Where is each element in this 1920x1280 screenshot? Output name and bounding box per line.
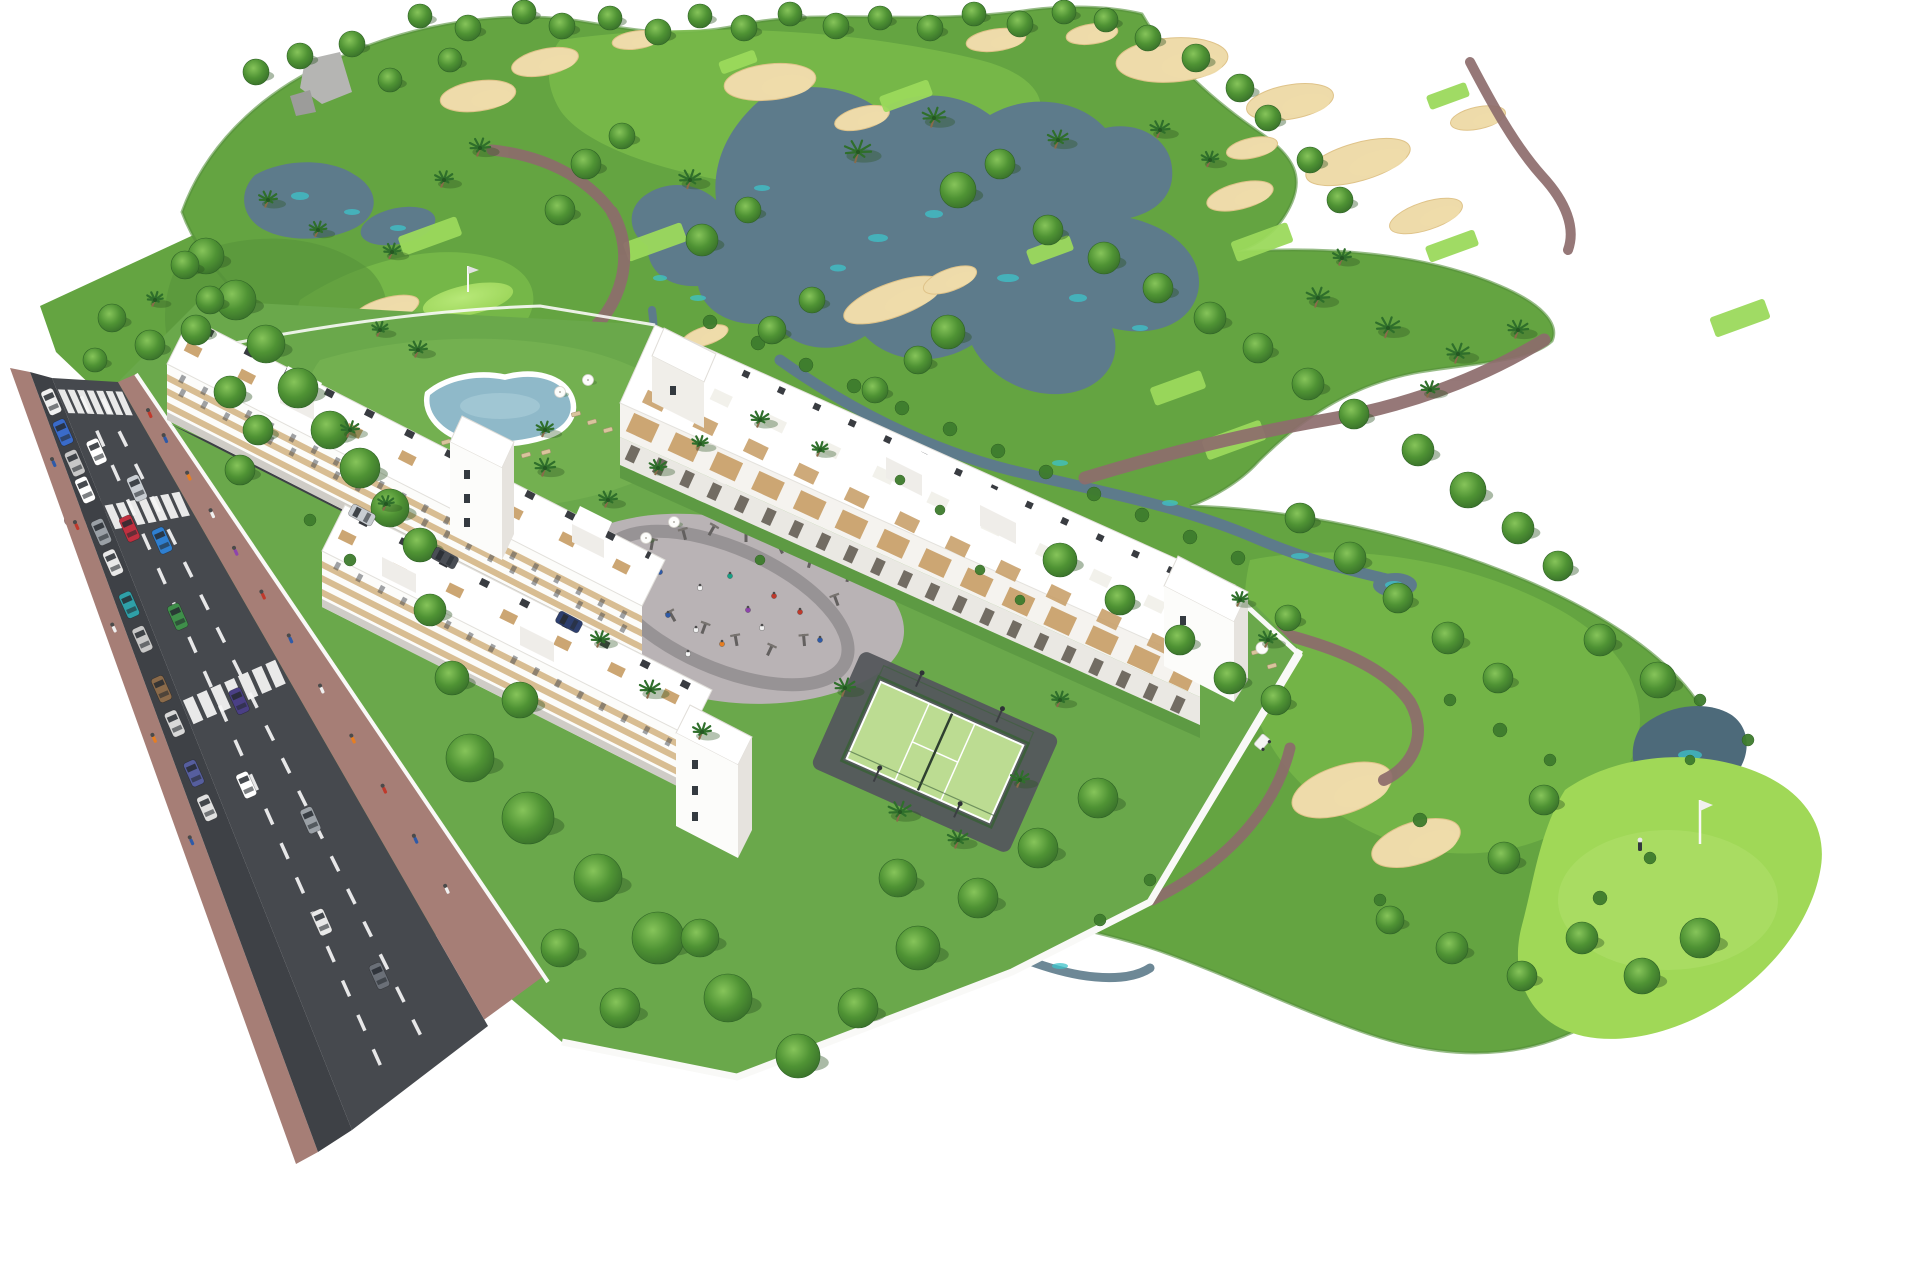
- palm-crown: [1516, 328, 1520, 332]
- parasol-pole: [673, 521, 675, 523]
- palm-crown: [1316, 296, 1320, 300]
- tree-canopy: [1226, 74, 1254, 102]
- tree-canopy: [1432, 622, 1464, 654]
- tree-canopy: [1436, 932, 1468, 964]
- tree-canopy: [645, 19, 671, 45]
- tree-canopy: [917, 15, 943, 41]
- palm-crown: [1456, 352, 1460, 356]
- person-head: [687, 650, 690, 653]
- teal-water-accent: [1069, 294, 1087, 302]
- tree-canopy: [1507, 961, 1537, 991]
- tree-canopy: [545, 195, 575, 225]
- palm-crown: [598, 638, 602, 642]
- tee-box: [1709, 298, 1771, 338]
- aerial-rendering-canvas: [0, 0, 1920, 1280]
- bush: [847, 379, 861, 393]
- tree-canopy: [609, 123, 635, 149]
- tree-canopy: [1334, 542, 1366, 574]
- tree-canopy: [686, 224, 718, 256]
- teal-water-accent: [653, 275, 667, 281]
- tree-canopy: [243, 59, 269, 85]
- teal-water-accent: [1132, 325, 1148, 331]
- tree-canopy: [408, 4, 432, 28]
- tree-canopy: [1285, 503, 1315, 533]
- tree-canopy: [247, 325, 285, 363]
- tree-canopy: [549, 13, 575, 39]
- palm-crown: [543, 428, 547, 432]
- tree-canopy: [1529, 785, 1559, 815]
- tree: [1402, 434, 1440, 466]
- person-head: [747, 606, 750, 609]
- tree-canopy: [1680, 918, 1720, 958]
- tree-canopy: [1566, 922, 1598, 954]
- tree-canopy: [731, 15, 757, 41]
- tree-canopy: [1376, 906, 1404, 934]
- tree-canopy: [225, 455, 255, 485]
- bush: [1444, 694, 1456, 706]
- palm-crown: [698, 442, 702, 446]
- palm-crown: [378, 328, 382, 332]
- tree-canopy: [1194, 302, 1226, 334]
- tree-canopy: [778, 2, 802, 26]
- tree: [1502, 512, 1540, 544]
- tree-canopy: [1135, 25, 1161, 51]
- palm-crown: [478, 146, 482, 150]
- bush: [991, 444, 1005, 458]
- tree-canopy: [455, 15, 481, 41]
- tree: [1339, 399, 1375, 429]
- palm-crown: [843, 686, 847, 690]
- cart-path: [1470, 62, 1571, 250]
- bush: [1413, 813, 1427, 827]
- pool-water-highlight: [460, 393, 540, 419]
- sand-bunker: [1386, 191, 1467, 241]
- tree-canopy: [1383, 583, 1413, 613]
- person-head: [695, 626, 698, 629]
- bush: [1593, 891, 1607, 905]
- teal-water-accent: [1052, 460, 1068, 466]
- tree-canopy: [1292, 368, 1324, 400]
- teal-water-accent: [1162, 500, 1178, 506]
- bush: [1231, 551, 1245, 565]
- palm-crown: [543, 466, 547, 470]
- tree-canopy: [931, 315, 965, 349]
- person-head: [729, 572, 732, 575]
- bush: [895, 401, 909, 415]
- block-a-tall-tower: [450, 416, 514, 560]
- palm-crown: [956, 838, 960, 842]
- tree-canopy: [502, 792, 554, 844]
- tree-canopy: [98, 304, 126, 332]
- tree-canopy: [879, 859, 917, 897]
- tree-canopy: [171, 251, 199, 279]
- person-head: [773, 592, 776, 595]
- golfer: [1638, 838, 1643, 851]
- tree-canopy: [1007, 11, 1033, 37]
- palm-crown: [1018, 778, 1022, 782]
- tree-canopy: [1488, 842, 1520, 874]
- rendering-stage: [0, 0, 1920, 1280]
- tree-canopy: [962, 2, 986, 26]
- tree-canopy: [571, 149, 601, 179]
- tree-canopy: [574, 854, 622, 902]
- tree-canopy: [1088, 242, 1120, 274]
- palm-crown: [1428, 388, 1432, 392]
- palm-crown: [1340, 256, 1344, 260]
- tree-canopy: [340, 448, 380, 488]
- palm-crown: [758, 418, 762, 422]
- teal-water-accent: [1291, 553, 1309, 559]
- tree: [1327, 187, 1358, 213]
- person-head: [761, 624, 764, 627]
- bush: [1183, 530, 1197, 544]
- tree-canopy: [414, 594, 446, 626]
- tree: [1543, 551, 1579, 581]
- tree-canopy: [1297, 147, 1323, 173]
- bush: [755, 555, 765, 565]
- palm-crown: [648, 688, 652, 692]
- bush: [895, 475, 905, 485]
- teal-water-accent: [868, 234, 888, 242]
- bush: [1742, 734, 1754, 746]
- tree-canopy: [823, 13, 849, 39]
- tree-canopy: [1165, 625, 1195, 655]
- tree-canopy: [438, 48, 462, 72]
- bush: [799, 358, 813, 372]
- palm-crown: [384, 502, 388, 506]
- palm-crown: [1208, 158, 1212, 162]
- tree-canopy: [688, 4, 712, 28]
- person-head: [799, 608, 802, 611]
- teal-water-accent: [925, 210, 943, 218]
- tree-canopy: [1094, 8, 1118, 32]
- bush: [1135, 508, 1149, 522]
- bush: [1694, 694, 1706, 706]
- teal-water-accent: [344, 209, 360, 215]
- tree-canopy: [838, 988, 878, 1028]
- teal-water-accent: [754, 185, 770, 191]
- tree-canopy: [1105, 585, 1135, 615]
- tree-canopy: [541, 929, 579, 967]
- tree-canopy: [1483, 663, 1513, 693]
- person-head: [819, 636, 822, 639]
- tree-canopy: [1502, 512, 1534, 544]
- palm-crown: [656, 466, 660, 470]
- palm-crown: [1158, 128, 1162, 132]
- tree-canopy: [1450, 472, 1486, 508]
- tree-canopy: [1261, 685, 1291, 715]
- tree-canopy: [598, 6, 622, 30]
- bush: [1374, 894, 1386, 906]
- tree-canopy: [1052, 0, 1076, 24]
- person-head: [667, 611, 670, 614]
- tree-canopy: [632, 912, 684, 964]
- palm-crown: [932, 116, 936, 120]
- parasol-pole: [587, 379, 589, 381]
- palm-crown: [818, 448, 822, 452]
- teal-water-accent: [1052, 963, 1068, 969]
- tree-canopy: [1078, 778, 1118, 818]
- tree-canopy: [214, 376, 246, 408]
- tree-canopy: [1214, 662, 1246, 694]
- palm-crown: [348, 428, 352, 432]
- tree-canopy: [181, 315, 211, 345]
- tree: [1450, 472, 1493, 508]
- tree-canopy: [600, 988, 640, 1028]
- palm-crown: [1266, 638, 1270, 642]
- bush: [1144, 874, 1156, 886]
- tree-canopy: [1584, 624, 1616, 656]
- tree-canopy: [435, 661, 469, 695]
- tree-canopy: [278, 368, 318, 408]
- bush: [1015, 595, 1025, 605]
- tree-canopy: [1339, 399, 1369, 429]
- palm-crown: [1056, 138, 1060, 142]
- tee-box: [1426, 82, 1471, 110]
- bush: [935, 505, 945, 515]
- bush: [1493, 723, 1507, 737]
- tree-canopy: [83, 348, 107, 372]
- palm-crown: [1058, 698, 1062, 702]
- bush: [943, 422, 957, 436]
- tree-canopy: [135, 330, 165, 360]
- tree-canopy: [1143, 273, 1173, 303]
- bush: [1039, 465, 1053, 479]
- palm-crown: [856, 150, 860, 154]
- bush: [1544, 754, 1556, 766]
- palm-crown: [700, 730, 704, 734]
- tree-canopy: [1402, 434, 1434, 466]
- tree-canopy: [502, 682, 538, 718]
- tree-canopy: [758, 316, 786, 344]
- tree-canopy: [1043, 543, 1077, 577]
- tree-canopy: [896, 926, 940, 970]
- tree-canopy: [940, 172, 976, 208]
- tree-canopy: [776, 1034, 820, 1078]
- tree-canopy: [904, 346, 932, 374]
- parasol-pole: [645, 537, 647, 539]
- teal-water-accent: [690, 295, 706, 301]
- palm-crown: [606, 498, 610, 502]
- tree-canopy: [1543, 551, 1573, 581]
- tree-canopy: [1275, 605, 1301, 631]
- tree-canopy: [378, 68, 402, 92]
- bush: [1644, 852, 1656, 864]
- palm-crown: [390, 250, 394, 254]
- tree-canopy: [1624, 958, 1660, 994]
- teal-water-accent: [997, 274, 1019, 282]
- tee-box: [1425, 229, 1480, 263]
- palm-crown: [1238, 598, 1242, 602]
- tree: [408, 4, 437, 28]
- tree-canopy: [1255, 105, 1281, 131]
- person-head: [721, 640, 724, 643]
- bush: [304, 514, 316, 526]
- teal-water-accent: [830, 265, 846, 272]
- tree-canopy: [735, 197, 761, 223]
- palm-crown: [1386, 326, 1390, 330]
- teal-water-accent: [291, 192, 309, 200]
- tree-canopy: [1018, 828, 1058, 868]
- teal-water-accent: [390, 225, 406, 231]
- palm-crown: [442, 178, 446, 182]
- tree-canopy: [287, 43, 313, 69]
- bush: [975, 565, 985, 575]
- tree-canopy: [985, 149, 1015, 179]
- tree-canopy: [704, 974, 752, 1022]
- palm-crown: [688, 178, 692, 182]
- tree-canopy: [512, 0, 536, 24]
- tree-canopy: [681, 919, 719, 957]
- tree-canopy: [799, 287, 825, 313]
- palm-crown: [153, 298, 157, 302]
- tree-canopy: [1243, 333, 1273, 363]
- bush: [1094, 914, 1106, 926]
- palm-crown: [266, 198, 270, 202]
- tree-canopy: [339, 31, 365, 57]
- bush: [703, 315, 717, 329]
- person-head: [699, 584, 702, 587]
- bush: [1685, 755, 1695, 765]
- tree: [688, 4, 717, 28]
- tree: [243, 59, 274, 85]
- tree-canopy: [862, 377, 888, 403]
- tree-canopy: [1327, 187, 1353, 213]
- palm-crown: [316, 228, 320, 232]
- parasol-pole: [559, 391, 561, 393]
- tree-canopy: [1182, 44, 1210, 72]
- palm-crown: [898, 810, 902, 814]
- tree-canopy: [868, 6, 892, 30]
- palm-crown: [416, 348, 420, 352]
- tree-canopy: [958, 878, 998, 918]
- tree-canopy: [1640, 662, 1676, 698]
- tree-canopy: [1033, 215, 1063, 245]
- bush: [1087, 487, 1101, 501]
- tree-canopy: [446, 734, 494, 782]
- bush: [344, 554, 356, 566]
- tree-canopy: [196, 286, 224, 314]
- tree-canopy: [243, 415, 273, 445]
